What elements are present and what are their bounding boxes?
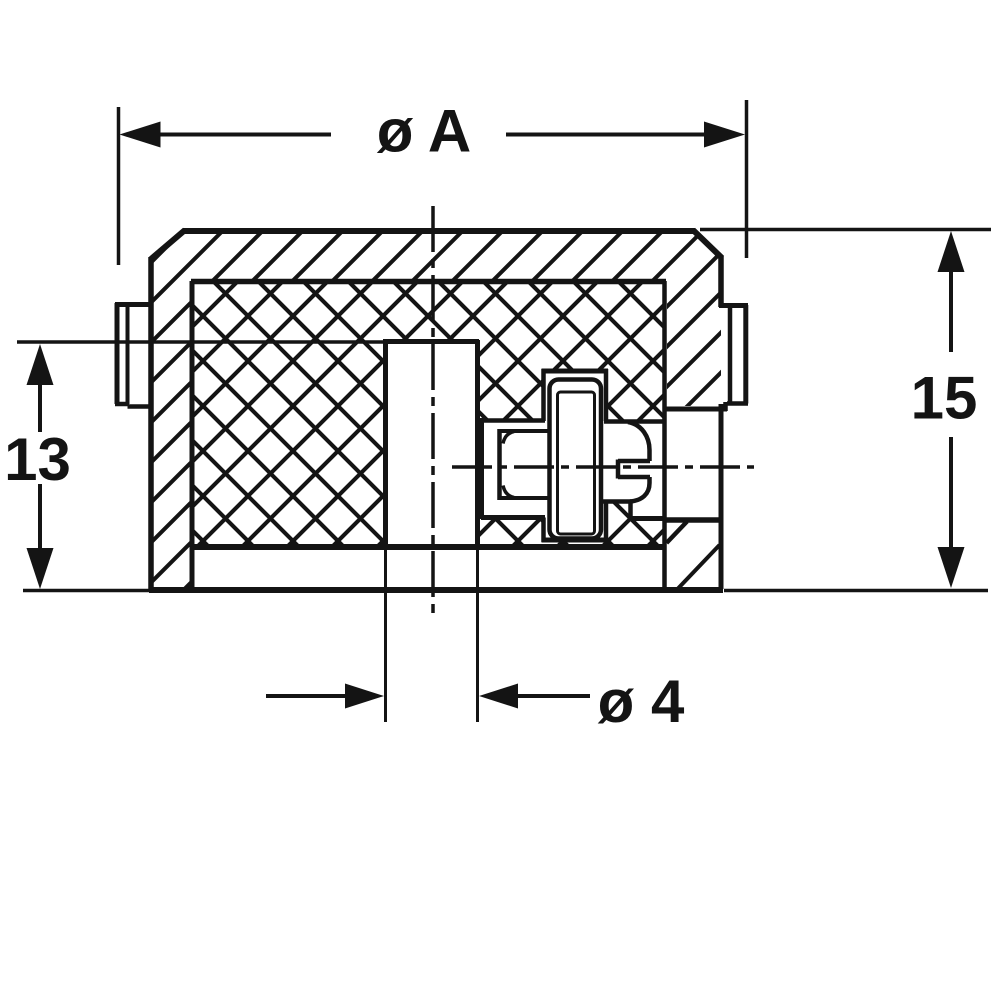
svg-text:ø A: ø A	[377, 98, 471, 165]
svg-text:ø 4: ø 4	[598, 668, 685, 735]
svg-text:13: 13	[4, 426, 71, 493]
svg-text:15: 15	[911, 365, 978, 432]
